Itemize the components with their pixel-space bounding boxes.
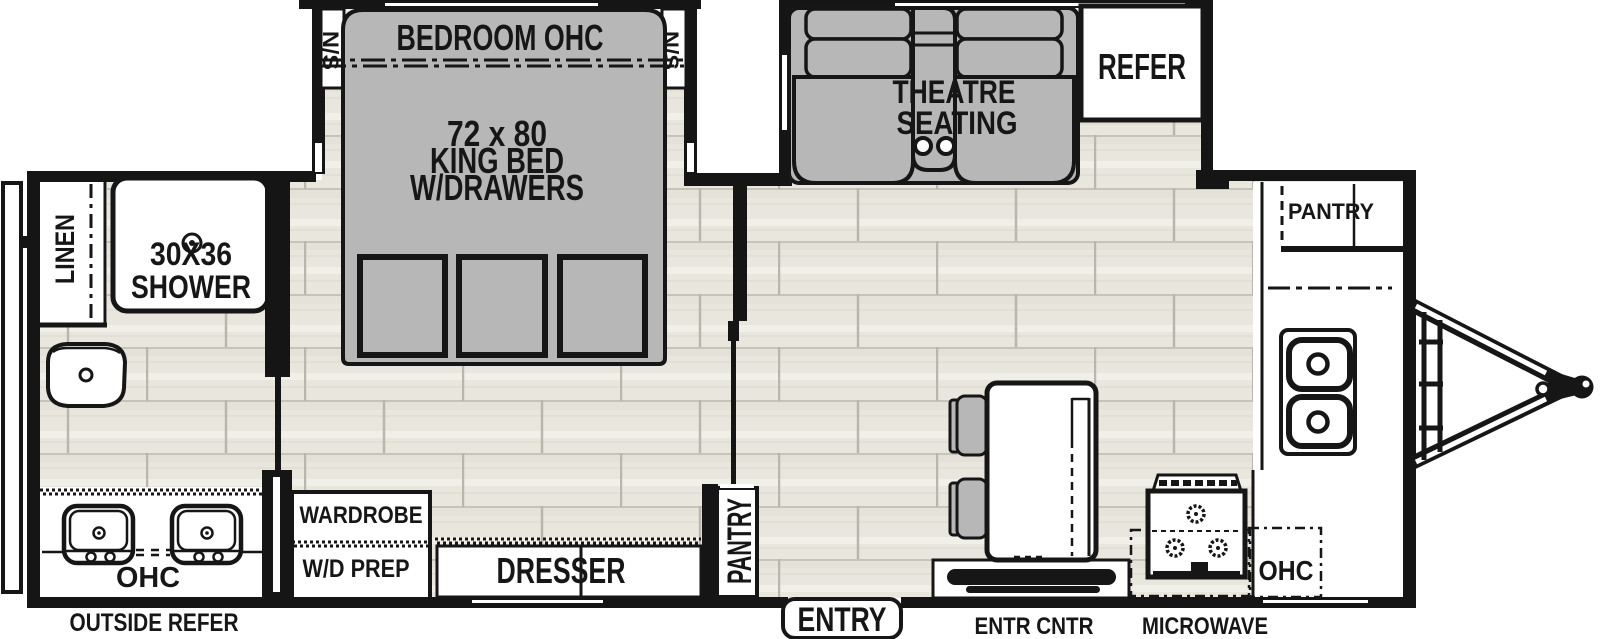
svg-text:W/DRAWERS: W/DRAWERS (410, 167, 584, 208)
svg-text:ENTRY: ENTRY (798, 601, 887, 639)
svg-text:MICROWAVE: MICROWAVE (1142, 613, 1268, 639)
svg-text:ENTR CNTR: ENTR CNTR (975, 613, 1094, 639)
svg-text:OUTSIDE REFER: OUTSIDE REFER (70, 609, 239, 637)
svg-text:W/D PREP: W/D PREP (303, 555, 410, 583)
svg-text:SEATING: SEATING (897, 105, 1018, 141)
svg-text:PANTRY: PANTRY (721, 498, 759, 584)
svg-text:30X36: 30X36 (150, 236, 232, 272)
svg-text:OHC: OHC (116, 562, 180, 594)
svg-text:N/S: N/S (318, 31, 343, 70)
svg-text:BEDROOM OHC: BEDROOM OHC (397, 17, 604, 58)
svg-text:PANTRY: PANTRY (1288, 199, 1374, 224)
svg-text:WARDROBE: WARDROBE (300, 502, 423, 529)
svg-text:DRESSER: DRESSER (497, 550, 626, 591)
svg-text:SHOWER: SHOWER (131, 269, 251, 305)
svg-text:LINEN: LINEN (50, 214, 80, 284)
svg-text:OHC: OHC (1259, 555, 1314, 586)
svg-text:REFER: REFER (1098, 46, 1186, 87)
